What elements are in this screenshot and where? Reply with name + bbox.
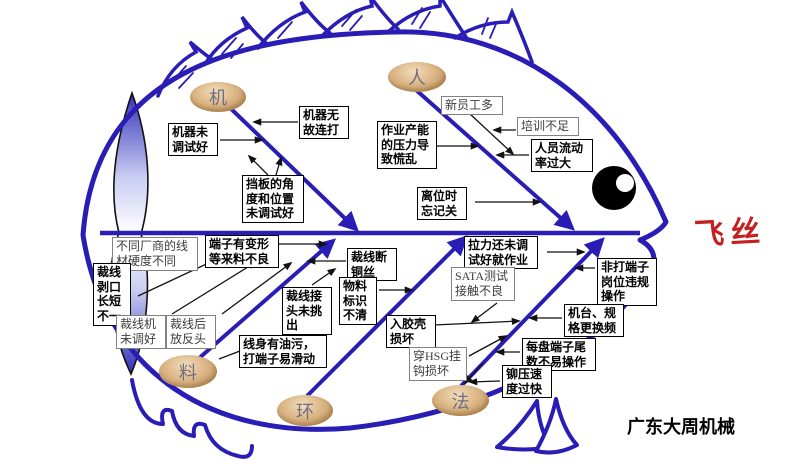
cause-box: 端子有变形等来料不良: [205, 235, 279, 268]
category-label: 机: [209, 84, 227, 110]
category-oval-material: 料: [159, 355, 217, 388]
category-label: 料: [179, 359, 197, 385]
cause-box: 穿HSG挂钩损坏: [409, 347, 467, 381]
cause-box: 离位时忘记关: [417, 187, 467, 220]
cause-box: 拉力还未调试好就作业: [464, 236, 538, 269]
cause-box: 机器无故连打: [299, 106, 349, 139]
cause-box: 培训不足: [517, 117, 579, 136]
cause-box: 人员流动率过大: [531, 139, 593, 172]
category-label: 人: [408, 64, 426, 90]
cause-box: 裁线后放反头: [166, 315, 216, 349]
category-label: 法: [452, 388, 470, 414]
category-oval-machine: 机: [190, 82, 246, 112]
cause-box: 新员工多: [441, 96, 503, 115]
fishbone-diagram: 机 人 料 环 法 机器未调试好 机器无故连打 挡板的角度和位置未调试好 新员工…: [0, 0, 796, 468]
cause-box: 物料标识不清: [339, 277, 377, 325]
cause-box: 铆压速度过快: [502, 365, 552, 398]
cause-box: SATA测试接触不良: [451, 267, 515, 301]
cause-box: 作业产能的压力导致慌乱: [377, 121, 437, 169]
cause-box: 非打端子岗位违规操作: [597, 258, 657, 306]
effect-label: 飞丝: [693, 206, 767, 254]
category-label: 环: [296, 398, 314, 424]
cause-box: 挡板的角度和位置未调试好: [242, 175, 304, 223]
cause-box: 机台、规格更换频: [564, 304, 624, 337]
cause-box: 裁线接头未挑出: [282, 287, 332, 335]
category-oval-environment: 环: [277, 395, 333, 426]
cause-box: 入胶壳损坏: [386, 315, 436, 348]
category-oval-man: 人: [388, 62, 446, 92]
category-oval-method: 法: [432, 385, 489, 416]
cause-box: 裁线机未调好: [116, 315, 166, 349]
fish-eye: [592, 166, 636, 210]
cause-box: 线身有油污，打端子易滑动: [239, 335, 327, 368]
watermark-text: 广东大周机械: [627, 413, 735, 439]
cause-box: 机器未调试好: [168, 123, 218, 156]
